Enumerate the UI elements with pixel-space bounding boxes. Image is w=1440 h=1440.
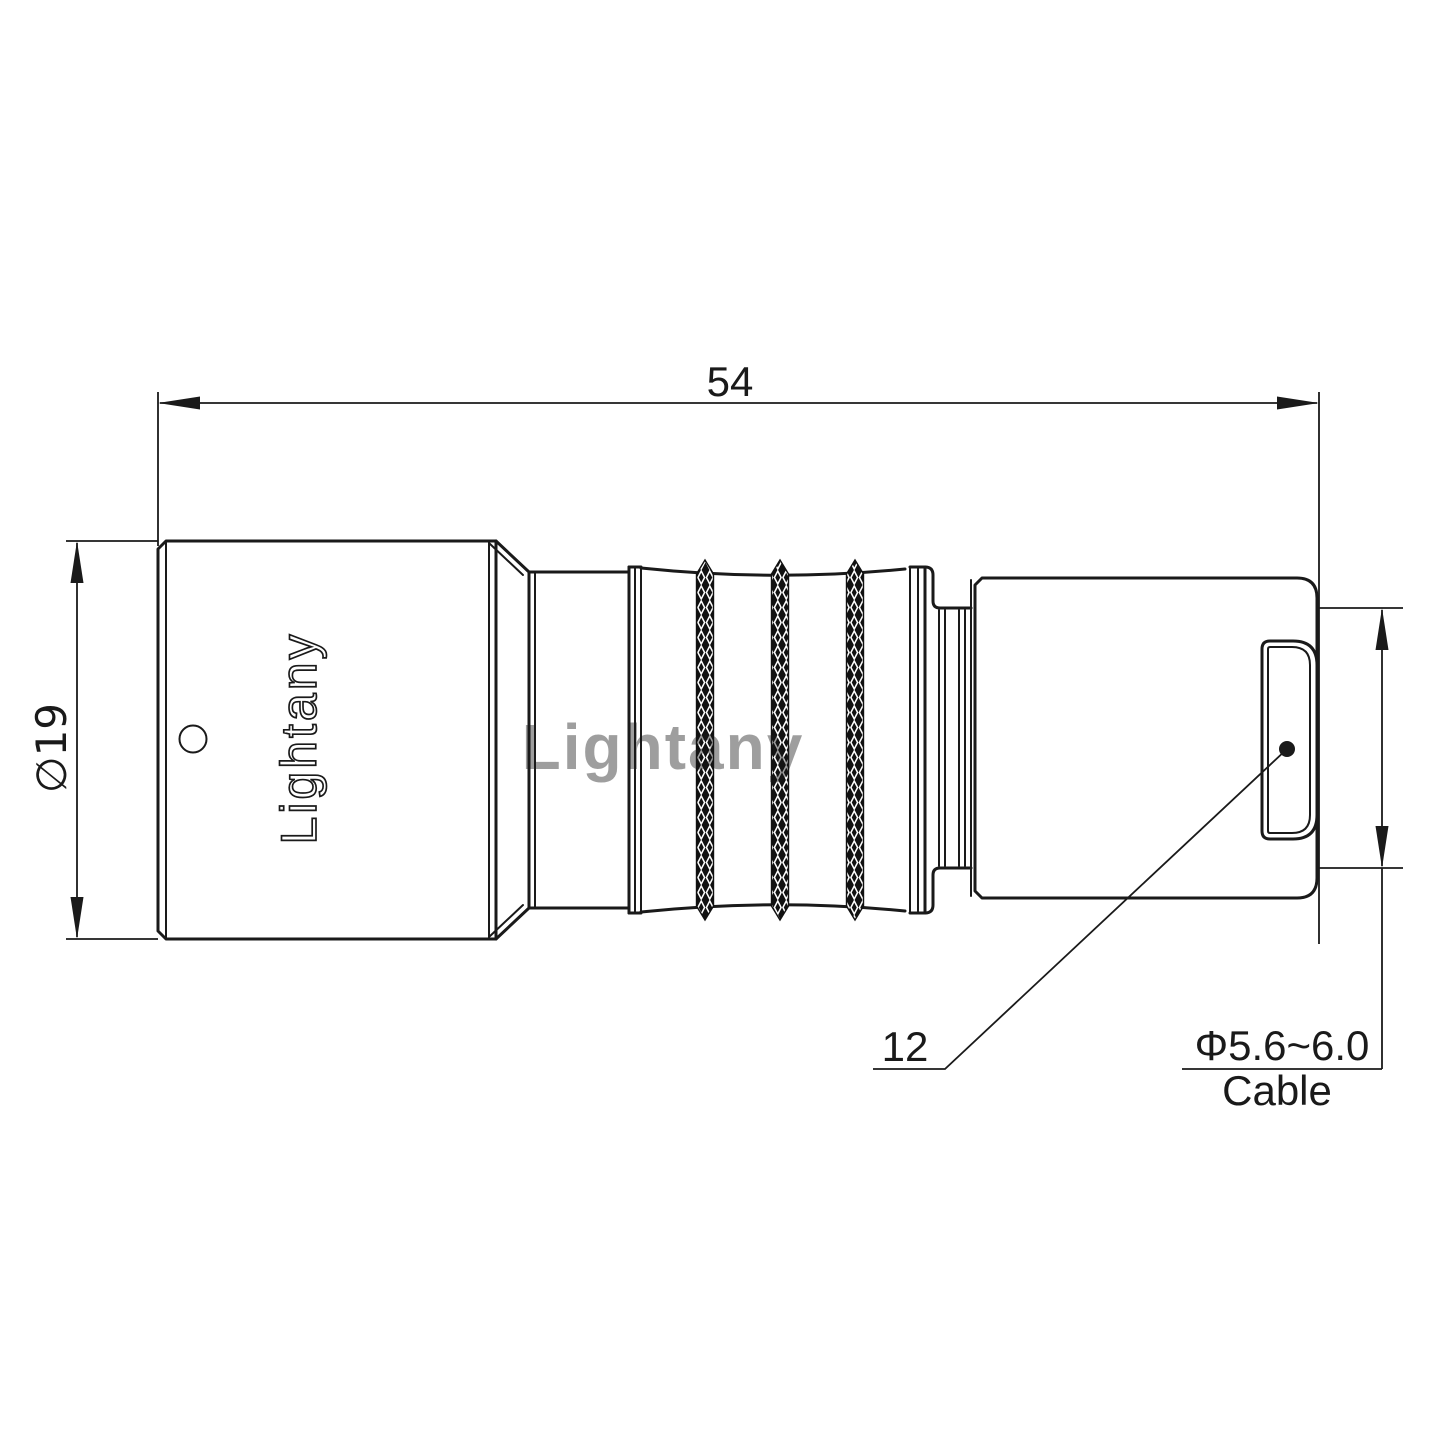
dim-cable-diameter-label: Φ5.6~6.0 [1195, 1022, 1370, 1069]
shell-engraving-text: Lightany [271, 631, 327, 844]
connector-drawing: Lightany [0, 0, 1440, 1440]
dim-54-label: 54 [707, 358, 754, 405]
bushing-window-outer [1262, 641, 1317, 839]
dim-cable-word-label: Cable [1222, 1067, 1332, 1114]
watermark-text: Lightany [522, 711, 805, 783]
strain-relief-nut [971, 578, 1317, 898]
drawing-canvas: Lightany [0, 0, 1440, 1440]
neck-groove [925, 567, 971, 913]
dim-12-label: 12 [882, 1023, 929, 1070]
main-shell-body [158, 541, 496, 939]
dimension-body-diameter: ∅19 [27, 541, 158, 939]
dim-19-label: ∅19 [27, 703, 76, 793]
knurl-band [847, 560, 864, 920]
